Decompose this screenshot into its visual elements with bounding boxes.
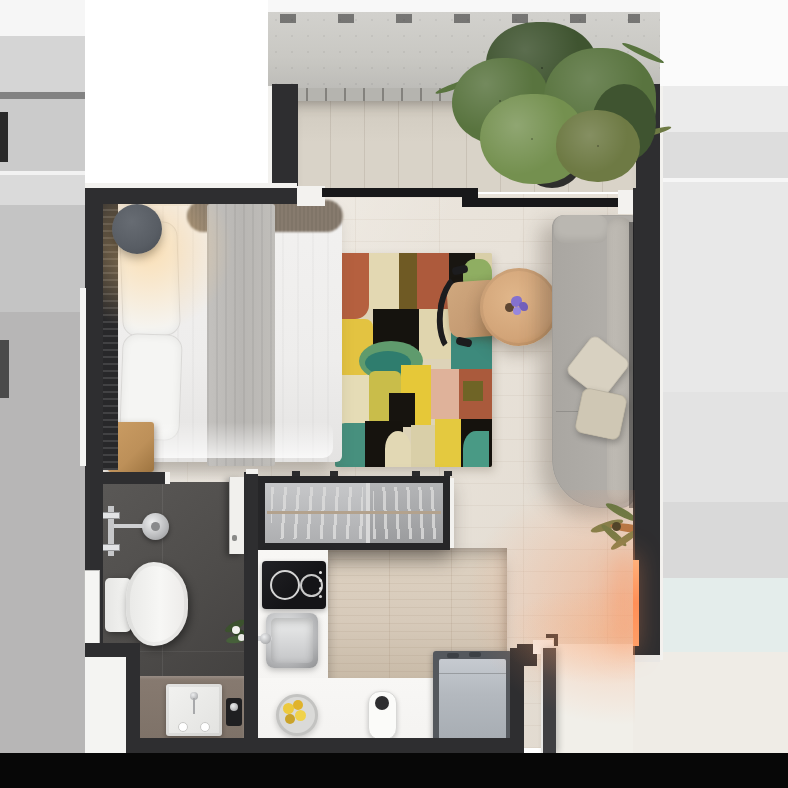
closet-track-stop xyxy=(444,471,452,476)
bg-band xyxy=(0,36,85,92)
closet-track-stop xyxy=(330,471,338,476)
shower-head xyxy=(142,513,169,540)
shower-arm xyxy=(112,524,144,528)
closet-end-cap xyxy=(450,478,454,548)
sink-basin xyxy=(271,618,313,663)
entry-door-handle xyxy=(554,634,558,646)
rug-cell xyxy=(385,431,411,467)
shower-head-center xyxy=(151,522,160,531)
sliding-door-panel[interactable] xyxy=(322,188,468,197)
sliding-door-panel[interactable] xyxy=(468,198,622,207)
fruit-bowl xyxy=(276,694,318,736)
top-wall xyxy=(85,188,325,204)
bg-band xyxy=(660,86,788,132)
bg-band xyxy=(660,502,788,578)
sofa-wall-shadow xyxy=(629,222,634,508)
fridge-handle xyxy=(447,653,459,658)
bathroom-top-wall xyxy=(103,472,169,484)
shower-handle xyxy=(102,544,120,551)
hanger-rail xyxy=(267,511,441,514)
cup xyxy=(200,722,210,732)
sofa-pillow xyxy=(574,387,629,442)
shower-handle xyxy=(102,512,120,519)
kettle xyxy=(368,691,397,740)
bg-band xyxy=(660,652,788,753)
fruit xyxy=(293,700,303,710)
vanity-sink xyxy=(166,684,222,736)
bottom-fade-band xyxy=(0,753,788,788)
curtain xyxy=(103,204,118,470)
faucet-base xyxy=(260,633,271,644)
bg-smudge xyxy=(0,112,8,162)
bg-band xyxy=(660,178,788,182)
fruit xyxy=(295,710,306,721)
balcony-wall-left-edge xyxy=(268,86,272,192)
bg-band xyxy=(660,132,788,178)
kitchen-sink xyxy=(266,613,318,668)
closet-track-stop xyxy=(412,471,420,476)
bedroom-window xyxy=(80,288,86,466)
toilet-bowl xyxy=(126,562,188,646)
cup xyxy=(178,722,188,732)
duvet-fold xyxy=(125,422,333,458)
rug-cell xyxy=(463,431,489,467)
bg-band xyxy=(0,0,85,36)
flowers xyxy=(513,307,521,315)
balcony-wall-left xyxy=(272,84,298,194)
exterior-right xyxy=(660,0,788,753)
plant-flower xyxy=(232,626,240,634)
wall-end-cap xyxy=(165,472,170,484)
closet-track-stop xyxy=(292,471,300,476)
bg-band xyxy=(0,99,85,171)
exterior-top xyxy=(268,0,660,12)
rug-cell xyxy=(431,369,459,419)
led-light-strip xyxy=(633,560,639,646)
exterior-left xyxy=(0,0,85,755)
left-wall-lower xyxy=(126,643,140,753)
bg-band xyxy=(660,0,788,86)
right-wall-cap xyxy=(633,655,660,662)
dispenser-pump xyxy=(230,703,238,711)
burner xyxy=(300,574,323,597)
entry-door[interactable] xyxy=(541,648,556,753)
bathroom-door[interactable] xyxy=(229,477,244,554)
wall-lamp xyxy=(112,204,162,254)
balcony-plant xyxy=(452,22,662,194)
exterior-corner-fill xyxy=(633,662,660,753)
rug-cell xyxy=(399,253,417,313)
rug-cell xyxy=(369,253,399,309)
fridge-side-wall xyxy=(510,648,524,753)
induction-cooktop xyxy=(262,561,326,609)
refrigerator xyxy=(433,651,512,750)
wardrobe-closet xyxy=(258,476,450,550)
kettle-lid xyxy=(375,696,389,710)
fridge-seam xyxy=(439,673,506,674)
plant-center xyxy=(612,522,621,531)
exterior-notch xyxy=(85,657,126,753)
bg-band xyxy=(0,205,85,312)
sofa-armrest xyxy=(554,215,608,243)
fridge-body xyxy=(439,659,506,744)
door-landing xyxy=(552,644,633,753)
bathroom-kitchen-divider-wall xyxy=(244,472,258,750)
vanity-faucet-spout xyxy=(193,698,195,714)
rug-cell xyxy=(435,419,461,467)
fridge-handle xyxy=(469,652,481,657)
bathroom-window xyxy=(84,570,100,650)
bg-smudge xyxy=(0,340,9,398)
wall-end-cap xyxy=(246,469,258,474)
burner xyxy=(270,570,300,600)
soap-dispenser xyxy=(226,698,242,726)
fruit xyxy=(285,714,295,724)
rug-cell xyxy=(411,425,435,467)
bg-band xyxy=(660,392,788,502)
plant-foliage xyxy=(556,110,640,182)
cooktop-controls xyxy=(319,571,322,574)
door-handle xyxy=(232,535,237,541)
floor-plan xyxy=(0,0,788,788)
bg-band xyxy=(0,175,85,205)
left-wall-jog xyxy=(85,643,131,657)
rug-cell xyxy=(463,381,483,401)
chaise-sofa xyxy=(552,215,635,508)
bg-band xyxy=(660,578,788,652)
bg-band xyxy=(0,92,85,99)
sliding-door-jamb-left xyxy=(297,186,325,206)
